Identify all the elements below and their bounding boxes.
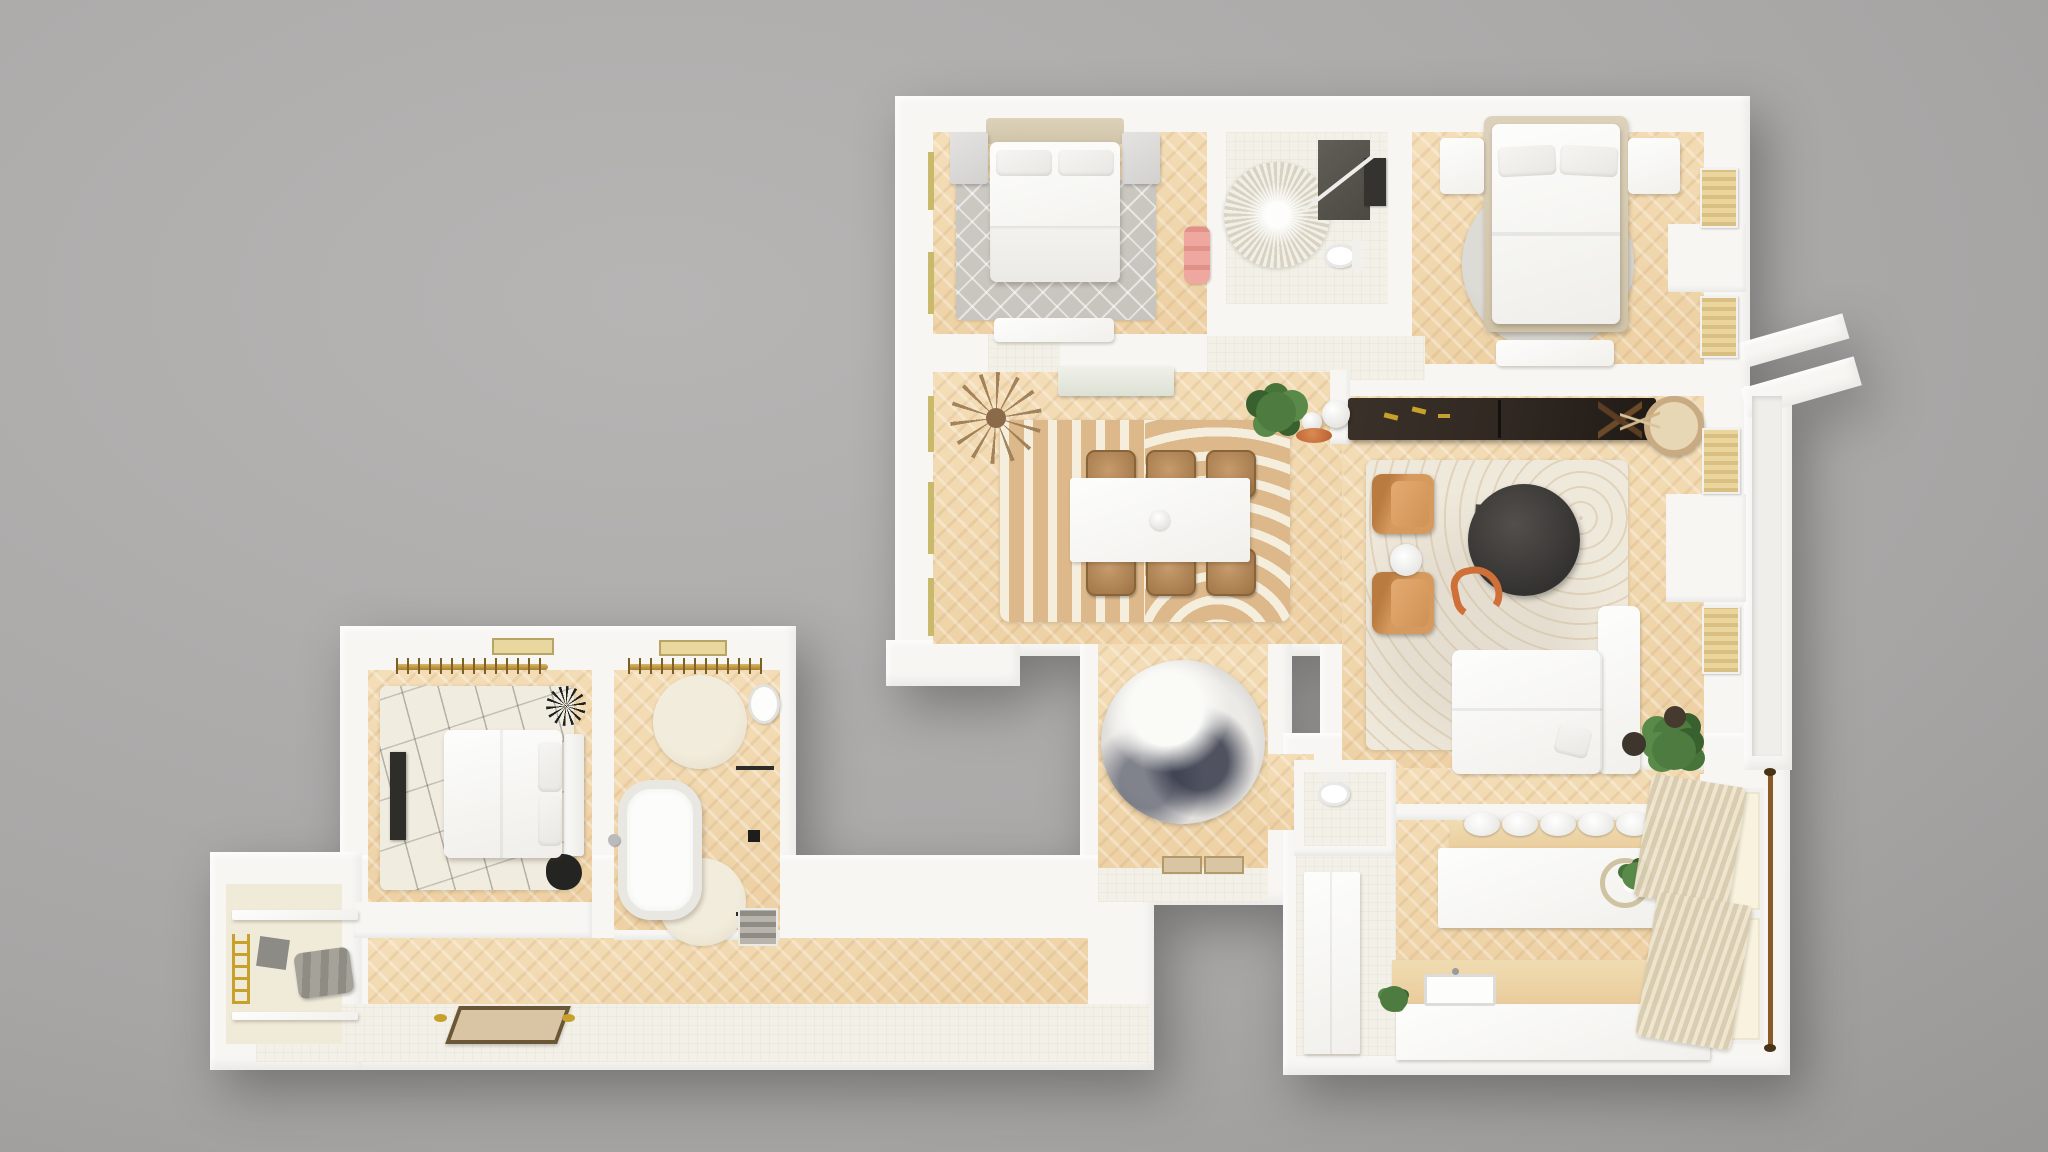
bedroom3-dark-plant-top	[546, 686, 586, 726]
foyer-threshold-2	[1204, 856, 1244, 874]
living-armchair-bottom	[1372, 572, 1434, 634]
living-window-radiator-upper	[1702, 428, 1740, 494]
kitchen-wc-toilet-tank	[1320, 772, 1348, 781]
bedroom2-pillow-left	[1497, 145, 1556, 178]
bedroom2-sheet-fold	[1492, 232, 1620, 236]
bedroom2-window-radiator-upper	[1700, 168, 1738, 228]
bedroom2-pillow-right	[1559, 145, 1618, 178]
kitchen-bar-stool-4	[1578, 812, 1614, 836]
balcony-east-floor	[1752, 396, 1782, 756]
kitchen-tall-cabinet-seam	[1330, 872, 1332, 1054]
kitchen-curtain-upper	[1633, 773, 1747, 910]
kitchen-fiddle-leaf-plant	[1652, 730, 1696, 770]
bedroom1-pillow-right	[1058, 150, 1114, 176]
dining-dried-plant-core	[986, 408, 1006, 428]
bathroom1-toilet-tank	[1352, 240, 1362, 270]
bedroom1-nightstand-left	[950, 132, 988, 184]
living-sideboard-divider	[1498, 400, 1501, 438]
kitchen-tall-cabinet	[1304, 872, 1360, 1054]
kitchen-bar-stool-2	[1502, 812, 1538, 836]
wing-skylight-window-left	[492, 638, 554, 655]
bedroom3-dark-decor-bottom	[546, 854, 582, 890]
closet-folded-blankets	[293, 946, 355, 999]
bath-round-rug-top	[653, 675, 747, 769]
bath-sink	[748, 684, 780, 724]
bedroom3-bed-crease	[500, 730, 503, 858]
kitchen-sink-tap	[1452, 968, 1459, 975]
bath-tub	[618, 780, 702, 920]
dining-window-3	[928, 578, 934, 636]
bedroom3-headboard	[564, 734, 584, 856]
dining-console	[1058, 366, 1174, 396]
dining-green-plant	[1256, 392, 1296, 432]
living-sphere-lamp-large	[1322, 400, 1350, 428]
kitchen-wc-floor	[1304, 772, 1386, 846]
bath-shoe-shelf	[738, 908, 778, 946]
kitchen-plant-pot	[1622, 732, 1646, 756]
living-side-table	[1390, 544, 1422, 576]
bath-tub-faucet	[608, 834, 620, 846]
living-window-pier	[1666, 494, 1746, 602]
foyer-threshold-1	[1162, 856, 1202, 874]
closet-shelf-upper	[232, 910, 358, 920]
foyer-marble-rug	[1101, 660, 1265, 824]
kitchen-curtain-rod-finial-bottom	[1764, 1044, 1776, 1052]
kitchen-bar-stool-1	[1464, 812, 1500, 836]
bedroom3-hangers	[396, 658, 548, 674]
entry-doormat	[445, 1006, 571, 1044]
bedroom1-pillow-left	[996, 150, 1052, 176]
bedroom1-towel-rack-pink	[1184, 226, 1210, 284]
bedroom2-foot-bench	[1496, 340, 1614, 366]
kitchen-sink	[1424, 974, 1496, 1006]
entry-slipper-left	[434, 1014, 447, 1022]
hallway-floor	[368, 938, 1088, 1006]
living-sofa-cushion-line	[1452, 708, 1602, 711]
balcony-dining-south	[886, 640, 1020, 686]
kitchen-bar-stool-3	[1540, 812, 1576, 836]
bedroom1-foot-bench	[994, 318, 1114, 342]
wing-skylight-window-right	[659, 640, 727, 656]
bathroom1-vanity	[1364, 158, 1386, 206]
living-pampas-sprigs	[1620, 404, 1660, 438]
living-corner-plant-pot	[1664, 706, 1686, 728]
dining-window-2	[928, 482, 934, 554]
bath-hangers	[628, 658, 762, 674]
living-armchair-top-seat	[1391, 481, 1429, 527]
roof-awning-upper	[1737, 313, 1850, 368]
bedroom3-pillow-bottom	[538, 796, 562, 846]
bedroom2-nightstand-right	[1628, 138, 1680, 194]
entry-floor	[256, 1004, 1150, 1062]
bedroom2-window-radiator-lower	[1700, 296, 1738, 358]
closet-gold-ladder	[232, 934, 250, 1004]
living-window-radiator-lower	[1702, 606, 1740, 674]
bedroom3-pillow-top	[538, 742, 562, 792]
wall-bedroom3-south	[354, 902, 592, 938]
living-sideboard-handle-3	[1438, 414, 1450, 418]
dining-table-vase	[1150, 510, 1170, 530]
living-armchair-top	[1372, 474, 1434, 534]
living-armchair-bottom-seat	[1391, 579, 1429, 626]
bedroom1-nightstand-right	[1122, 132, 1160, 184]
bedroom1-window-lower	[928, 252, 934, 314]
kitchen-curtain-rod	[1768, 772, 1773, 1048]
living-orange-bowl	[1296, 428, 1332, 443]
kitchen-curtain-rod-finial-top	[1764, 768, 1776, 776]
bedroom2-nightstand-left	[1440, 138, 1484, 194]
bedroom2-window-pier	[1668, 224, 1746, 292]
bedroom1-window-upper	[928, 152, 934, 210]
bedroom1-bed-headboard	[986, 118, 1124, 144]
closet-storage-panel	[256, 936, 290, 970]
apartment-building	[0, 0, 2048, 1152]
kitchen-wc-toilet	[1318, 782, 1350, 806]
bedroom1-blanket-fold	[990, 226, 1120, 282]
bedroom3-wall-tv	[390, 752, 406, 840]
floorplan-scene	[0, 0, 2048, 1152]
entry-slipper-right	[562, 1014, 575, 1022]
closet-shelf-lower	[232, 1012, 358, 1020]
kitchen-counter-plant	[1380, 986, 1408, 1012]
dining-window-1	[928, 396, 934, 452]
bathroom1-starburst-rug	[1224, 162, 1330, 268]
bath-mirror-handle	[748, 830, 760, 842]
